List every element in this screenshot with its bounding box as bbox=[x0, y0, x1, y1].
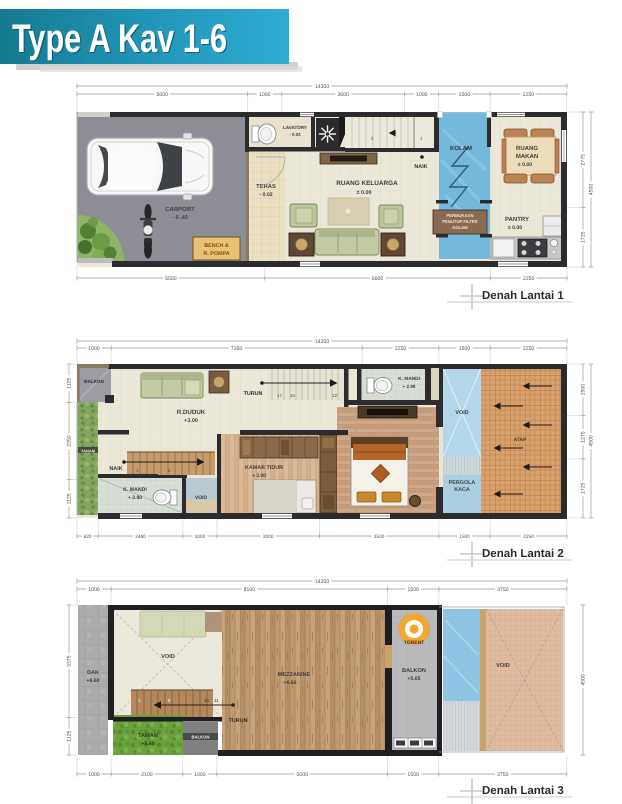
svg-text:1000: 1000 bbox=[88, 587, 100, 593]
svg-text:TAMAN: TAMAN bbox=[138, 733, 158, 739]
svg-text:2775: 2775 bbox=[580, 154, 586, 166]
svg-text:± 0.00: ± 0.00 bbox=[518, 162, 532, 168]
svg-text:1275: 1275 bbox=[580, 431, 586, 443]
svg-text:3500: 3500 bbox=[374, 534, 385, 540]
svg-text:10: 10 bbox=[204, 698, 209, 703]
svg-text:R. POMPA: R. POMPA bbox=[203, 251, 229, 257]
svg-text:1500: 1500 bbox=[408, 587, 420, 593]
svg-text:Denah Lantai 1: Denah Lantai 1 bbox=[482, 290, 564, 302]
svg-text:2250: 2250 bbox=[523, 276, 535, 282]
svg-text:2250: 2250 bbox=[523, 534, 534, 540]
svg-text:TURUN: TURUN bbox=[244, 391, 263, 397]
svg-text:+5.65: +5.65 bbox=[407, 676, 420, 682]
svg-text:3000: 3000 bbox=[263, 534, 274, 540]
svg-text:KAMAR TIDUR: KAMAR TIDUR bbox=[245, 465, 283, 471]
svg-text:TANAM: TANAM bbox=[81, 448, 96, 453]
svg-text:TORENT: TORENT bbox=[404, 640, 424, 646]
svg-text:DAK: DAK bbox=[87, 670, 99, 676]
svg-text:- 0.02: - 0.02 bbox=[259, 192, 272, 198]
svg-text:BENCH &: BENCH & bbox=[204, 243, 229, 249]
svg-text:BALKON: BALKON bbox=[84, 379, 104, 384]
svg-text:3600: 3600 bbox=[337, 92, 349, 98]
svg-text:VOID: VOID bbox=[195, 495, 208, 501]
svg-text:1500: 1500 bbox=[459, 346, 471, 352]
svg-text:VOID: VOID bbox=[496, 663, 510, 669]
svg-text:12: 12 bbox=[332, 393, 337, 398]
svg-text:+5.60: +5.60 bbox=[141, 741, 154, 747]
svg-text:1125: 1125 bbox=[66, 731, 72, 742]
svg-text:1500: 1500 bbox=[407, 772, 419, 778]
svg-text:+ 2.88: + 2.88 bbox=[403, 384, 416, 389]
svg-text:3750: 3750 bbox=[497, 772, 509, 778]
svg-text:1000: 1000 bbox=[259, 92, 271, 98]
svg-text:1725: 1725 bbox=[580, 483, 586, 495]
svg-text:MEZZANINE: MEZZANINE bbox=[278, 672, 311, 678]
svg-text:2480: 2480 bbox=[135, 534, 146, 540]
svg-text:BALKON: BALKON bbox=[192, 735, 210, 740]
svg-text:KACA: KACA bbox=[454, 487, 470, 493]
svg-text:8100: 8100 bbox=[244, 587, 256, 593]
svg-text:Type A Kav 1-6: Type A Kav 1-6 bbox=[12, 17, 227, 61]
svg-text:K. MANDI: K. MANDI bbox=[398, 376, 421, 382]
svg-text:14350: 14350 bbox=[315, 579, 330, 585]
svg-text:11: 11 bbox=[214, 698, 219, 703]
svg-text:5000: 5000 bbox=[157, 92, 169, 98]
svg-text:ATAP: ATAP bbox=[514, 437, 528, 443]
svg-text:4500: 4500 bbox=[588, 184, 594, 196]
svg-text:3750: 3750 bbox=[497, 587, 509, 593]
svg-text:K. MANDI: K. MANDI bbox=[123, 487, 147, 493]
svg-text:PENUTUP FILTER: PENUTUP FILTER bbox=[442, 219, 477, 224]
svg-text:14350: 14350 bbox=[315, 339, 330, 345]
svg-text:2250: 2250 bbox=[523, 346, 535, 352]
svg-text:Denah Lantai 3: Denah Lantai 3 bbox=[482, 785, 564, 797]
svg-text:NAIK: NAIK bbox=[109, 466, 122, 472]
svg-text:1500: 1500 bbox=[459, 534, 470, 540]
svg-text:LAVATORY: LAVATORY bbox=[283, 125, 307, 130]
svg-text:± 0.00: ± 0.00 bbox=[357, 190, 372, 196]
svg-text:- 0 .40: - 0 .40 bbox=[172, 215, 188, 221]
svg-text:+6.60: +6.60 bbox=[86, 678, 99, 684]
svg-text:5000: 5000 bbox=[296, 772, 308, 778]
svg-text:TURUN: TURUN bbox=[229, 718, 248, 724]
svg-text:1500: 1500 bbox=[459, 92, 471, 98]
svg-text:2250: 2250 bbox=[66, 435, 72, 447]
svg-text:+6.60: +6.60 bbox=[283, 680, 296, 686]
svg-text:15: 15 bbox=[290, 393, 295, 398]
svg-text:2100: 2100 bbox=[141, 772, 153, 778]
svg-text:VOID: VOID bbox=[161, 654, 175, 660]
svg-text:6600: 6600 bbox=[372, 276, 384, 282]
svg-text:620: 620 bbox=[84, 534, 92, 540]
svg-text:KOLAM: KOLAM bbox=[452, 225, 468, 230]
svg-text:CARPORT: CARPORT bbox=[165, 206, 195, 213]
svg-text:+3.00: +3.00 bbox=[184, 418, 198, 424]
svg-text:PANTRY: PANTRY bbox=[505, 216, 529, 223]
svg-text:1725: 1725 bbox=[580, 231, 586, 243]
svg-text:2250: 2250 bbox=[395, 346, 407, 352]
svg-text:14350: 14350 bbox=[315, 84, 330, 90]
svg-text:1000: 1000 bbox=[194, 772, 206, 778]
svg-text:PERMUKAAN: PERMUKAAN bbox=[446, 213, 473, 218]
svg-text:RUANG: RUANG bbox=[516, 145, 538, 152]
svg-text:1000: 1000 bbox=[88, 346, 100, 352]
svg-text:1000: 1000 bbox=[88, 772, 100, 778]
svg-text:1500: 1500 bbox=[580, 384, 586, 396]
svg-text:± 0.00: ± 0.00 bbox=[508, 225, 522, 231]
svg-text:MAKAN: MAKAN bbox=[516, 153, 538, 160]
svg-text:VOID: VOID bbox=[455, 410, 468, 416]
svg-text:1000: 1000 bbox=[416, 92, 428, 98]
svg-text:+ 2.90: + 2.90 bbox=[128, 495, 142, 501]
svg-text:NAIK: NAIK bbox=[414, 164, 427, 170]
svg-text:PERGOLA: PERGOLA bbox=[449, 480, 476, 486]
svg-text:4500: 4500 bbox=[588, 435, 594, 447]
svg-text:R.DUDUK: R.DUDUK bbox=[177, 409, 206, 416]
svg-text:+ 3.00: + 3.00 bbox=[252, 473, 266, 479]
svg-text:RUANG KELUARGA: RUANG KELUARGA bbox=[336, 180, 398, 187]
svg-text:3375: 3375 bbox=[66, 655, 72, 667]
svg-text:- 0.03: - 0.03 bbox=[289, 132, 301, 137]
svg-text:BALKON: BALKON bbox=[402, 668, 426, 674]
svg-text:1000: 1000 bbox=[195, 534, 206, 540]
svg-text:5500: 5500 bbox=[165, 276, 177, 282]
svg-text:KOLAM: KOLAM bbox=[450, 145, 472, 152]
svg-text:7350: 7350 bbox=[231, 346, 243, 352]
svg-text:1125: 1125 bbox=[66, 493, 72, 504]
svg-text:Denah Lantai 2: Denah Lantai 2 bbox=[482, 548, 564, 560]
svg-text:17: 17 bbox=[277, 393, 282, 398]
svg-text:4500: 4500 bbox=[580, 674, 586, 686]
svg-text:2250: 2250 bbox=[523, 92, 535, 98]
svg-text:1125: 1125 bbox=[66, 378, 72, 389]
